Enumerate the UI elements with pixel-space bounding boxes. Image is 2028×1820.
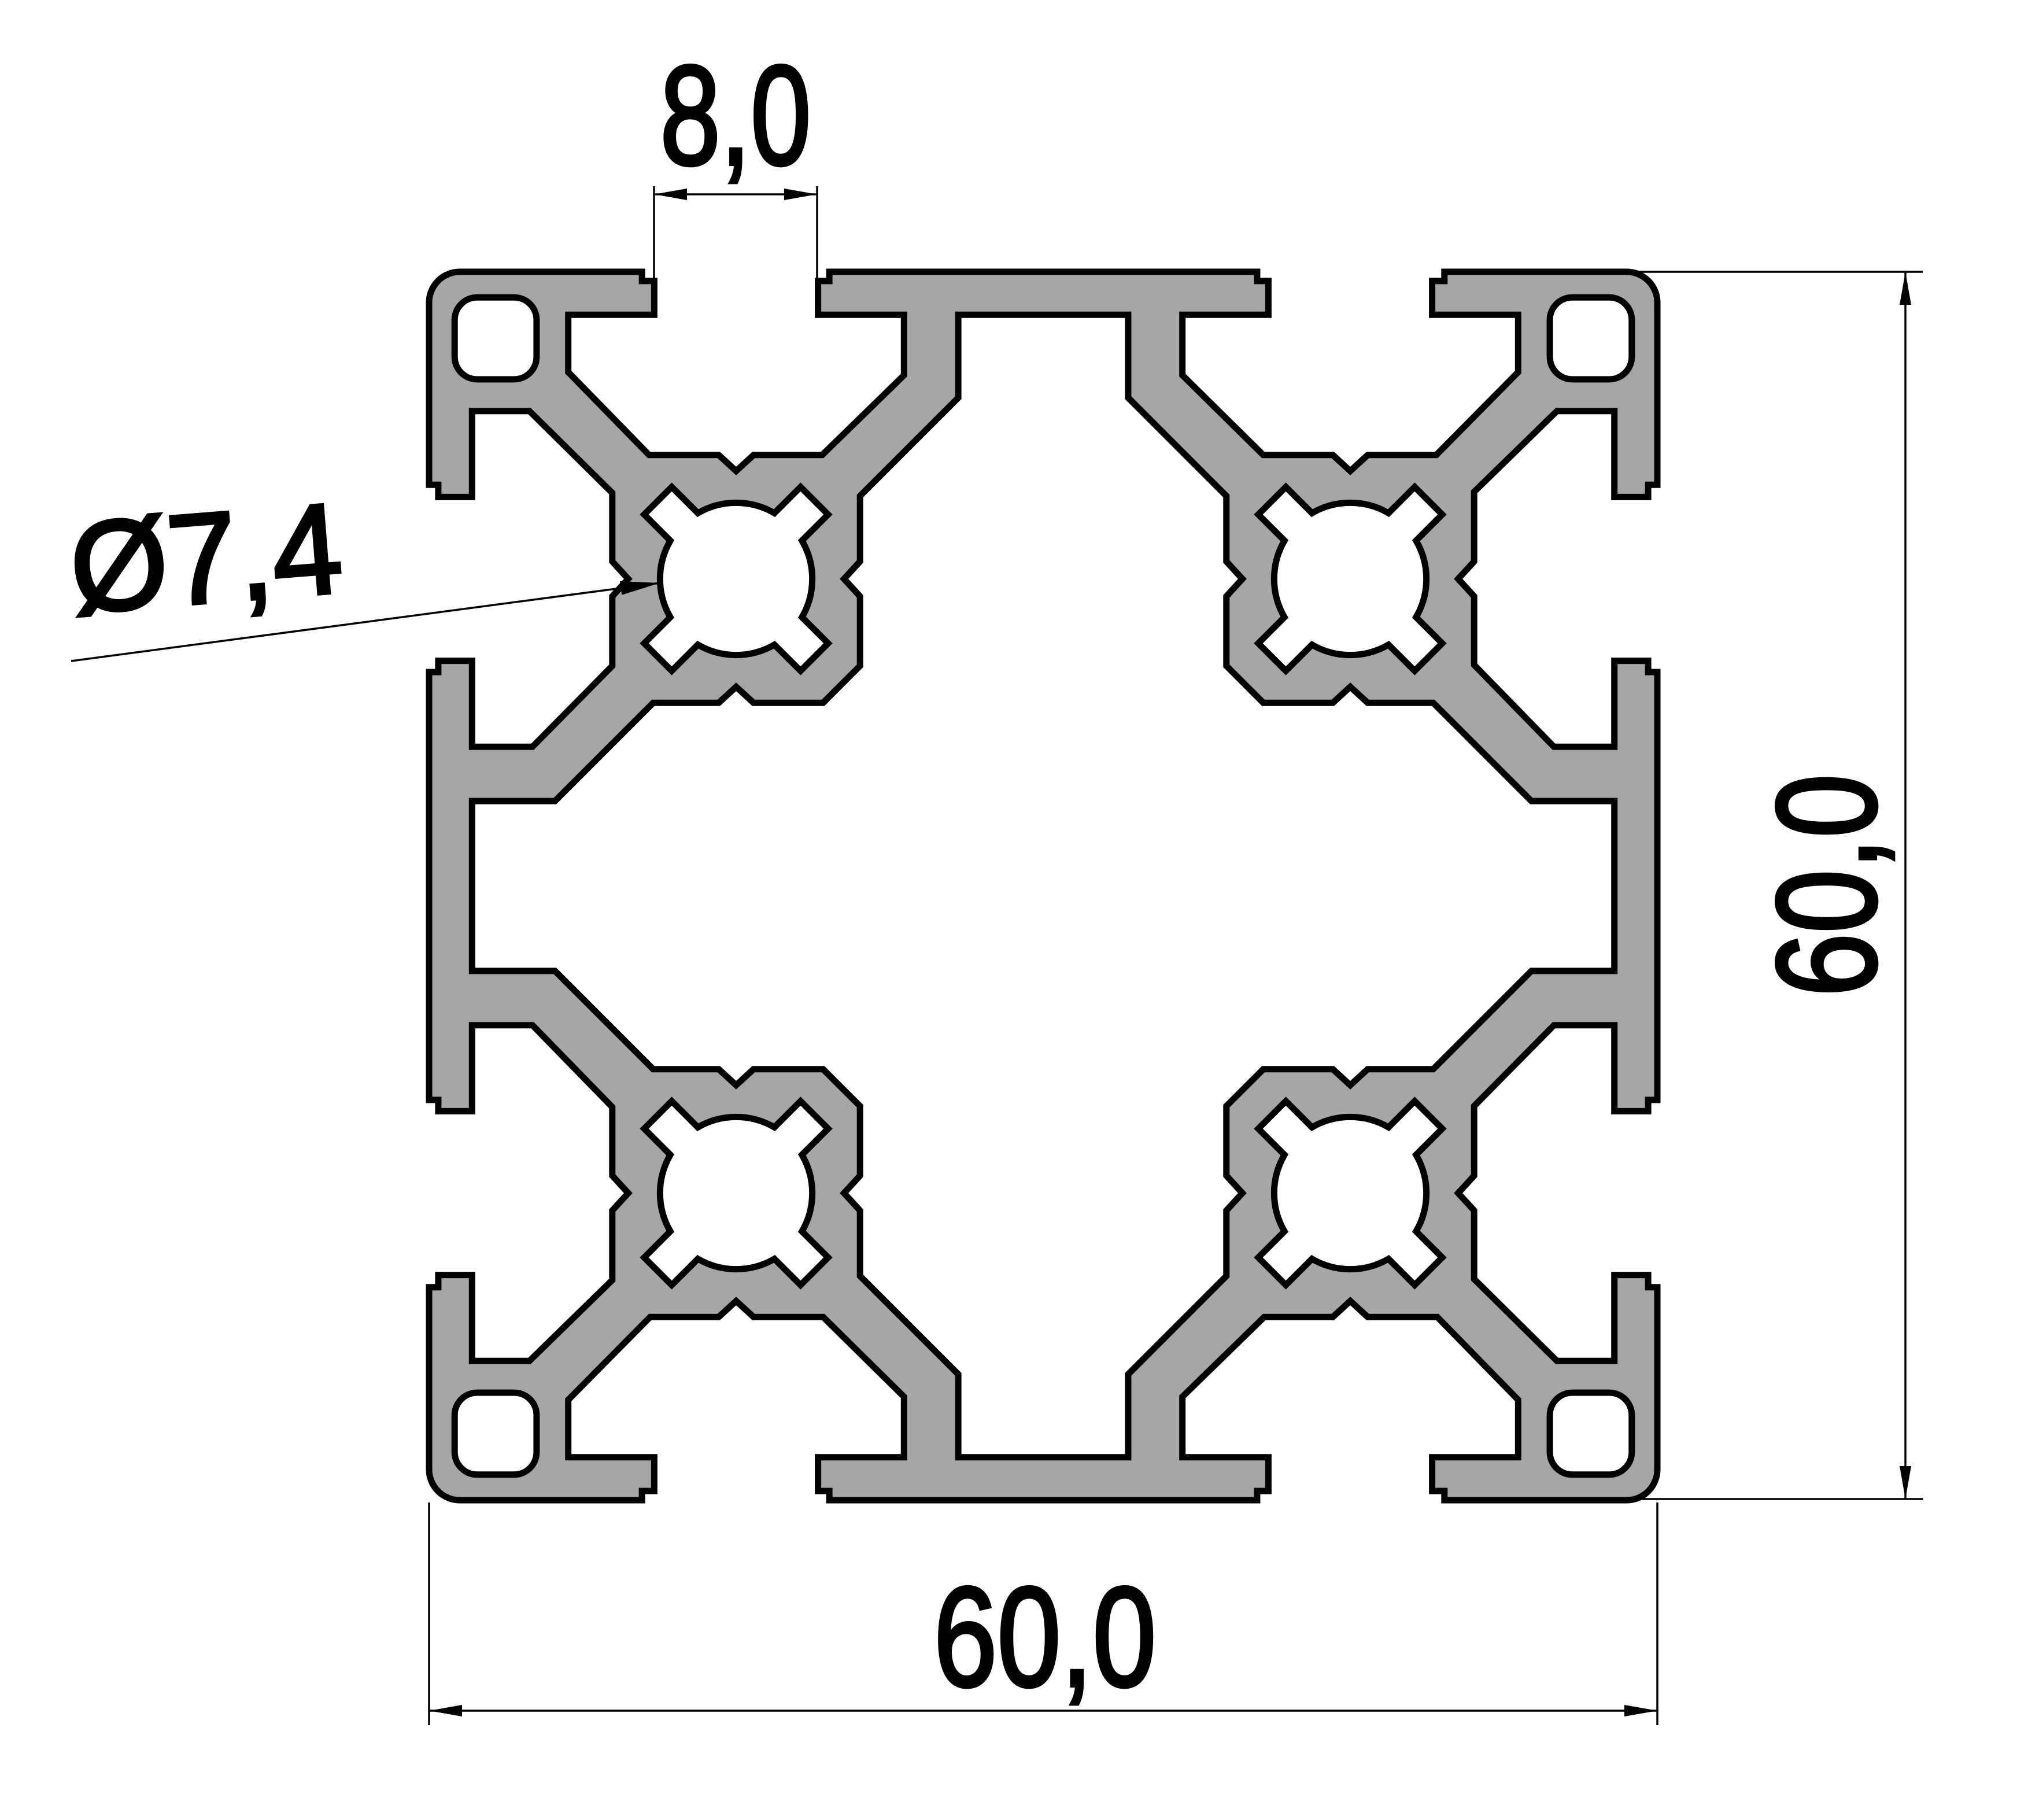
- svg-text:Ø7,4: Ø7,4: [65, 477, 347, 641]
- svg-text:8,0: 8,0: [660, 36, 811, 194]
- svg-text:60,0: 60,0: [934, 1557, 1157, 1716]
- svg-text:60,0: 60,0: [1747, 774, 1905, 997]
